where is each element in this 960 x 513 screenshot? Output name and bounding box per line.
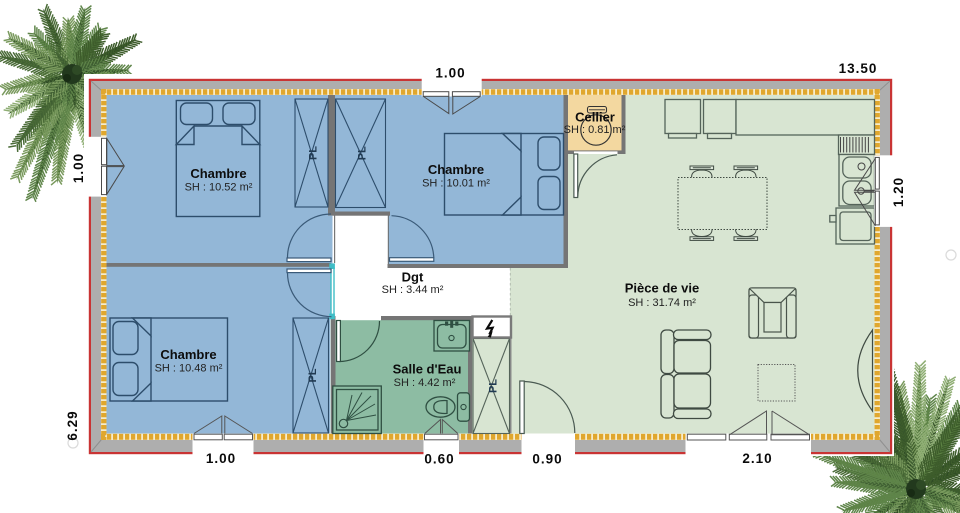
svg-text:Pièce de vie: Pièce de vie xyxy=(625,281,699,296)
svg-text:1.20: 1.20 xyxy=(891,177,906,207)
svg-text:2.10: 2.10 xyxy=(742,451,772,466)
svg-text:SH : 0.81 m²: SH : 0.81 m² xyxy=(564,124,626,136)
svg-text:SH : 4.42 m²: SH : 4.42 m² xyxy=(394,377,456,389)
svg-text:6.29: 6.29 xyxy=(65,410,80,440)
svg-text:Chambre: Chambre xyxy=(190,166,246,181)
svg-text:Chambre: Chambre xyxy=(428,162,484,177)
svg-text:1.00: 1.00 xyxy=(206,451,236,466)
svg-text:PL: PL xyxy=(357,146,369,160)
svg-text:PL: PL xyxy=(307,368,319,382)
svg-text:SH : 10.48 m²: SH : 10.48 m² xyxy=(155,363,223,375)
svg-text:Cellier: Cellier xyxy=(575,110,615,125)
svg-text:SH : 3.44 m²: SH : 3.44 m² xyxy=(382,284,444,296)
svg-text:Chambre: Chambre xyxy=(160,347,216,362)
svg-text:1.00: 1.00 xyxy=(435,66,465,81)
svg-text:0.60: 0.60 xyxy=(424,452,454,467)
svg-text:SH : 31.74 m²: SH : 31.74 m² xyxy=(628,297,696,309)
svg-text:PL: PL xyxy=(487,379,499,393)
svg-text:Dgt: Dgt xyxy=(402,270,424,285)
svg-text:PL: PL xyxy=(308,146,320,160)
svg-text:SH : 10.01 m²: SH : 10.01 m² xyxy=(422,178,490,190)
svg-text:SH : 10.52 m²: SH : 10.52 m² xyxy=(185,182,253,194)
svg-text:0.90: 0.90 xyxy=(532,452,562,467)
svg-text:Salle d'Eau: Salle d'Eau xyxy=(393,362,462,377)
svg-text:13.50: 13.50 xyxy=(839,61,878,76)
svg-text:1.00: 1.00 xyxy=(71,153,86,183)
